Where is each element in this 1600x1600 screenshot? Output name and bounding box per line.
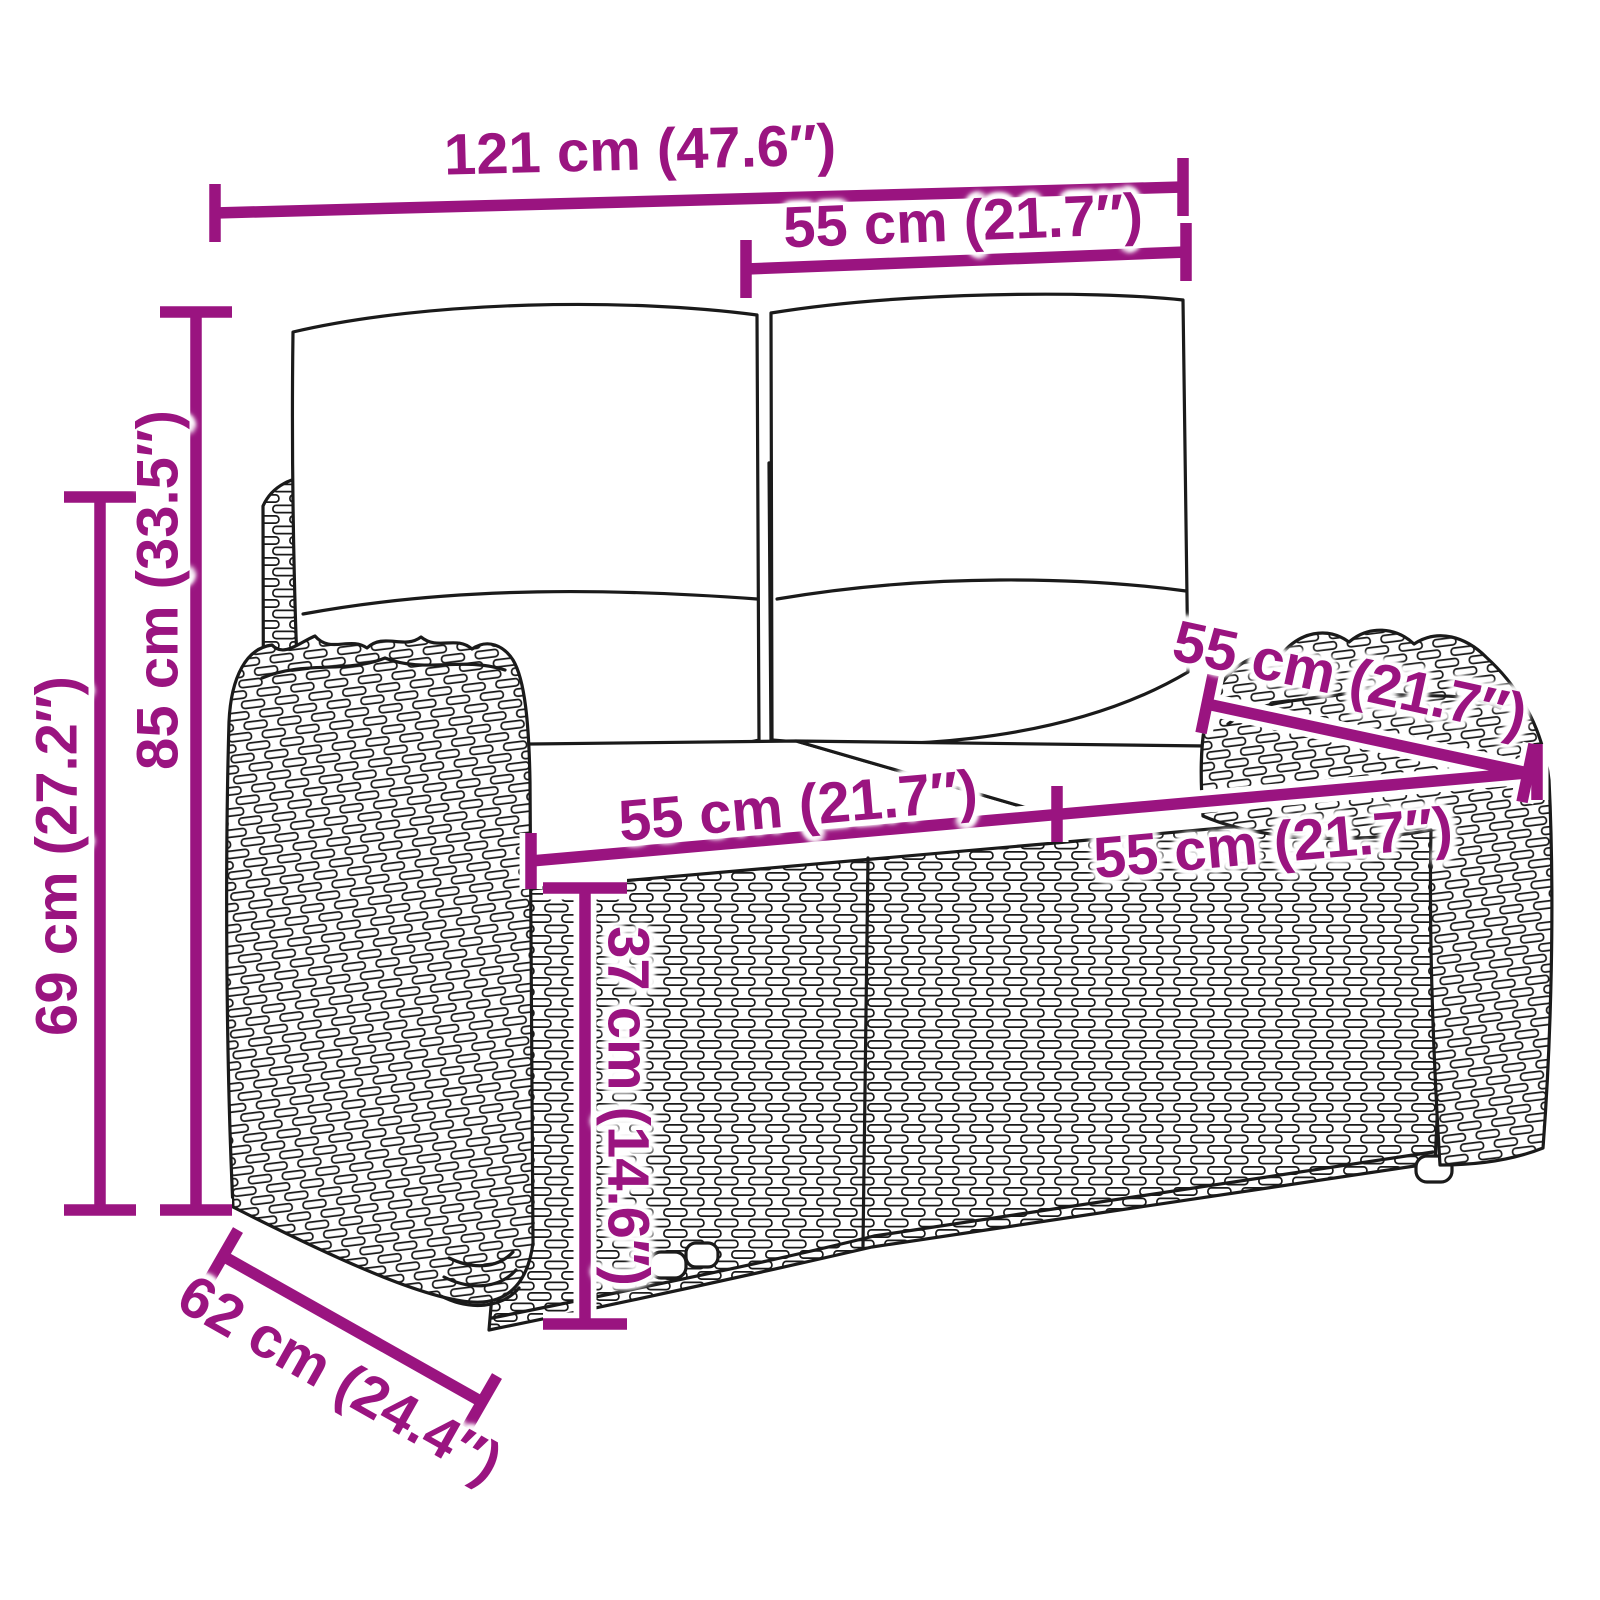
- dim-label-overall-width: 121 cm (47.6″): [443, 111, 837, 188]
- dim-label-overall-height: 85 cm (33.5″): [125, 410, 192, 770]
- dim-label-frame-height: 69 cm (27.2″): [24, 676, 91, 1036]
- dim-label-backrest-width: 55 cm (21.7″): [782, 181, 1144, 262]
- dim-label-seat-height: 37 cm (14.6″): [595, 926, 662, 1286]
- product-dimension-diagram: 121 cm (47.6″) 55 cm (21.7″) 85 cm (33.5…: [0, 0, 1600, 1600]
